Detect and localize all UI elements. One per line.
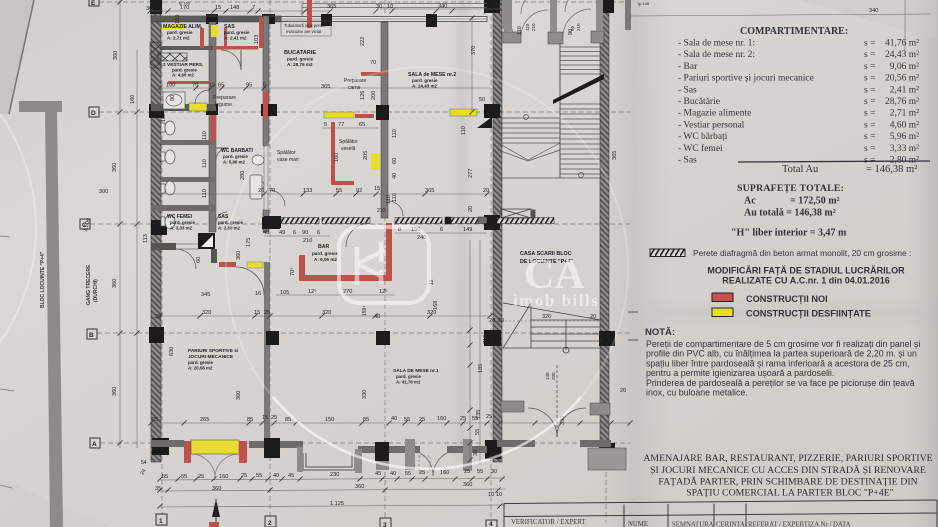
svg-text:- WC bărbați: - WC bărbați xyxy=(678,132,728,142)
svg-text:25: 25 xyxy=(460,416,466,422)
svg-text:= 172,50 m²: = 172,50 m² xyxy=(790,196,840,207)
svg-text:- Bucătărie: - Bucătărie xyxy=(678,97,720,107)
svg-text:A: 2,71 m2: A: 2,71 m2 xyxy=(167,36,190,41)
svg-text:170: 170 xyxy=(180,5,189,11)
svg-text:113: 113 xyxy=(143,234,149,243)
svg-text:55: 55 xyxy=(475,429,481,435)
svg-text:40: 40 xyxy=(390,471,396,477)
svg-text:Ac: Ac xyxy=(744,196,756,207)
svg-text:SPAȚIU COMERCIAL LA PARTER BLO: SPAȚIU COMERCIAL LA PARTER BLOC "P+4E" xyxy=(686,488,894,499)
svg-text:210: 210 xyxy=(531,23,536,31)
svg-text:s =: s = xyxy=(864,74,875,84)
svg-text:365: 365 xyxy=(425,188,434,194)
svg-text:320: 320 xyxy=(427,310,436,316)
svg-text:360: 360 xyxy=(236,251,242,260)
svg-text:pard. gresie: pard. gresie xyxy=(412,78,438,83)
svg-text:s =: s = xyxy=(864,50,875,60)
svg-text:630: 630 xyxy=(169,347,175,356)
svg-text:50: 50 xyxy=(479,97,485,103)
svg-text:2: 2 xyxy=(268,520,272,527)
svg-text:carne: carne xyxy=(348,85,361,91)
svg-text:- Vestiar personal: - Vestiar personal xyxy=(678,120,745,130)
svg-text:3,33 m²: 3,33 m² xyxy=(890,144,919,154)
svg-text:A: 2,41 m2: A: 2,41 m2 xyxy=(224,36,247,41)
svg-text:4: 4 xyxy=(489,521,493,527)
svg-text:- Sala de mese nr. 2:: - Sala de mese nr. 2: xyxy=(678,50,755,60)
svg-text:110: 110 xyxy=(525,23,530,31)
svg-text:s =: s = xyxy=(864,39,875,49)
svg-text:365: 365 xyxy=(612,151,618,160)
svg-text:Spălător: Spălător xyxy=(339,139,358,145)
svg-text:25: 25 xyxy=(264,310,270,316)
svg-text:25: 25 xyxy=(271,415,277,421)
svg-text:55: 55 xyxy=(405,471,411,477)
svg-text:s =: s = xyxy=(864,62,875,72)
svg-text:15: 15 xyxy=(209,83,215,89)
svg-text:300: 300 xyxy=(99,189,108,195)
svg-text:40: 40 xyxy=(273,473,279,479)
svg-text:55: 55 xyxy=(477,469,483,475)
svg-text:legume: legume xyxy=(215,102,232,108)
svg-text:Total Au: Total Au xyxy=(782,164,819,175)
svg-text:- WC femei: - WC femei xyxy=(678,143,723,154)
svg-text:NUME: NUME xyxy=(628,521,648,527)
svg-text:A: 20,56 m2: A: 20,56 m2 xyxy=(188,366,213,371)
svg-text:149: 149 xyxy=(463,227,472,233)
svg-text:veselă: veselă xyxy=(341,146,356,152)
svg-text:320: 320 xyxy=(322,310,331,316)
svg-text:320: 320 xyxy=(542,314,551,320)
svg-text:5: 5 xyxy=(263,83,266,89)
svg-text:pard. gresie: pard. gresie xyxy=(224,30,250,35)
svg-text:B: B xyxy=(89,332,94,339)
svg-text:85: 85 xyxy=(363,417,369,423)
svg-text:(DURCHI): (DURCHI) xyxy=(93,279,99,302)
svg-text:103: 103 xyxy=(254,35,260,44)
svg-text:A: 28,76 m2: A: 28,76 m2 xyxy=(287,62,313,67)
svg-text:- Sas: - Sas xyxy=(678,85,697,95)
svg-text:70: 70 xyxy=(269,188,275,194)
svg-text:ȘI JOCURI MECANICE CU ACCES DI: ȘI JOCURI MECANICE CU ACCES DIN STRADĂ Ș… xyxy=(650,464,926,476)
svg-text:Au totală = 146,38 m²: Au totală = 146,38 m² xyxy=(744,208,836,219)
svg-text:126: 126 xyxy=(360,91,366,100)
svg-text:110: 110 xyxy=(392,193,398,202)
svg-text:15: 15 xyxy=(215,5,221,11)
svg-text:80: 80 xyxy=(170,95,176,101)
svg-text:41,76 m²: 41,76 m² xyxy=(885,39,919,49)
svg-text:- Pariuri sportive și jocuri m: - Pariuri sportive și jocuri mecanice xyxy=(678,74,814,84)
svg-text:40: 40 xyxy=(263,230,269,236)
svg-text:pard. gresie: pard. gresie xyxy=(312,251,338,256)
svg-text:163: 163 xyxy=(175,15,181,24)
svg-text:pard. gresie: pard. gresie xyxy=(170,220,195,225)
svg-text:20: 20 xyxy=(258,188,264,194)
svg-text:330: 330 xyxy=(362,390,368,399)
svg-text:49: 49 xyxy=(279,230,285,236)
svg-text:25: 25 xyxy=(155,314,161,320)
svg-text:- Magazie alimente: - Magazie alimente xyxy=(678,109,751,119)
svg-text:24,43 m²: 24,43 m² xyxy=(885,50,919,60)
svg-text:102: 102 xyxy=(161,113,167,122)
svg-text:200: 200 xyxy=(371,91,377,100)
svg-text:pard. gresie: pard. gresie xyxy=(287,57,313,62)
svg-text:"H" liber interior = 3,47 m: "H" liber interior = 3,47 m xyxy=(731,228,847,239)
svg-text:65: 65 xyxy=(218,83,224,89)
svg-text:BUCATARIE: BUCATARIE xyxy=(284,50,316,56)
svg-text:340: 340 xyxy=(869,8,878,14)
svg-text:185: 185 xyxy=(478,364,484,373)
svg-text:30: 30 xyxy=(473,450,479,456)
svg-text:- Sala de mese nr. 1:: - Sala de mese nr. 1: xyxy=(678,39,755,49)
svg-text:200: 200 xyxy=(551,372,556,380)
svg-text:5,96 m²: 5,96 m² xyxy=(890,132,919,142)
svg-text:inox, cu buloane metalice.: inox, cu buloane metalice. xyxy=(646,388,748,398)
svg-text:60: 60 xyxy=(196,257,202,263)
svg-text:85: 85 xyxy=(285,417,291,423)
svg-text:CONSTRUCȚII DESFIINȚATE: CONSTRUCȚII DESFIINȚATE xyxy=(746,309,871,319)
svg-text:12⁵: 12⁵ xyxy=(308,288,317,295)
svg-text:90: 90 xyxy=(302,230,308,236)
svg-text:360: 360 xyxy=(355,484,364,490)
svg-text:10: 10 xyxy=(496,492,502,498)
svg-text:55: 55 xyxy=(336,188,342,194)
svg-text:REALIZATE CU A.C.nr. 1 din 04.: REALIZATE CU A.C.nr. 1 din 04.01.2016 xyxy=(722,276,890,286)
svg-text:277: 277 xyxy=(468,169,474,178)
svg-text:s =: s = xyxy=(864,109,875,119)
svg-text:65: 65 xyxy=(359,122,365,128)
svg-text:evacuare aer viciat: evacuare aer viciat xyxy=(286,29,322,34)
svg-text:25: 25 xyxy=(464,469,470,475)
svg-text:s =: s = xyxy=(864,132,875,142)
svg-text:COMPARTIMENTARE:: COMPARTIMENTARE: xyxy=(740,26,848,37)
svg-text:15: 15 xyxy=(374,186,380,192)
svg-text:Spălător: Spălător xyxy=(277,150,296,156)
svg-text:100: 100 xyxy=(166,83,175,89)
svg-text:20: 20 xyxy=(620,388,626,394)
svg-text:95: 95 xyxy=(246,83,252,89)
svg-text:175: 175 xyxy=(246,238,252,247)
svg-text:MODIFICĂRI FAȚĂ DE STADIUL LUC: MODIFICĂRI FAȚĂ DE STADIUL LUCRĂRILOR xyxy=(707,266,905,276)
svg-text:45: 45 xyxy=(288,473,294,479)
svg-text:A: A xyxy=(92,441,97,448)
svg-text:77: 77 xyxy=(338,122,344,128)
svg-text:CONSTRUCȚII NOI: CONSTRUCȚII NOI xyxy=(746,294,828,304)
svg-text:55: 55 xyxy=(162,474,168,480)
svg-text:265: 265 xyxy=(200,417,209,423)
svg-text:70: 70 xyxy=(192,83,198,89)
svg-text:SEMNATURA: SEMNATURA xyxy=(672,522,714,527)
svg-text:BLOC LOCUINTE "P+4": BLOC LOCUINTE "P+4" xyxy=(40,251,46,308)
svg-text:45: 45 xyxy=(375,471,381,477)
svg-text:210: 210 xyxy=(303,238,312,244)
svg-text:40: 40 xyxy=(391,416,397,422)
svg-text:A: 4,60 m2: A: 4,60 m2 xyxy=(172,73,195,78)
svg-text:GANG TRECERE: GANG TRECERE xyxy=(86,264,92,305)
svg-text:30: 30 xyxy=(146,6,152,12)
svg-text:25: 25 xyxy=(152,417,158,423)
svg-text:s =: s = xyxy=(864,97,875,107)
svg-text:vase mari: vase mari xyxy=(277,157,299,163)
svg-text:3: 3 xyxy=(383,522,387,527)
svg-text:9,06 m²: 9,06 m² xyxy=(890,62,919,72)
svg-text:2,41 m²: 2,41 m² xyxy=(890,85,919,95)
svg-text:6: 6 xyxy=(317,230,320,236)
svg-text:25: 25 xyxy=(419,417,425,423)
svg-text:85: 85 xyxy=(247,417,253,423)
svg-text:15: 15 xyxy=(254,310,260,316)
svg-text:A: 24,43 m2: A: 24,43 m2 xyxy=(412,84,438,89)
svg-text:20: 20 xyxy=(498,318,504,324)
svg-text:CERINTA: CERINTA xyxy=(716,522,745,527)
svg-text:SUPRAFEȚE TOTALE:: SUPRAFEȚE TOTALE: xyxy=(737,183,844,194)
svg-text:28,76 m²: 28,76 m² xyxy=(885,97,919,107)
svg-text:s =: s = xyxy=(864,120,875,130)
svg-text:Pereții de compartimentare de: Pereții de compartimentare de 5 cm grosi… xyxy=(646,339,920,349)
svg-text:6: 6 xyxy=(440,227,443,233)
svg-text:360: 360 xyxy=(236,391,242,400)
svg-text:6: 6 xyxy=(293,230,296,236)
svg-text:222: 222 xyxy=(360,37,366,46)
svg-text:20: 20 xyxy=(468,206,474,212)
svg-text:360: 360 xyxy=(113,51,119,60)
svg-text:Tubulatură inox pentru: Tubulatură inox pentru xyxy=(284,23,326,28)
svg-text:25: 25 xyxy=(419,470,425,476)
svg-text:280: 280 xyxy=(240,171,246,180)
svg-text:159⁵: 159⁵ xyxy=(362,306,368,316)
svg-text:BAR: BAR xyxy=(318,244,329,250)
svg-text:110: 110 xyxy=(517,26,523,35)
svg-text:70: 70 xyxy=(370,60,376,66)
svg-text:30: 30 xyxy=(376,4,382,10)
svg-text:55: 55 xyxy=(404,417,410,423)
svg-text:92: 92 xyxy=(356,188,362,194)
svg-text:230: 230 xyxy=(330,472,339,478)
svg-text:365: 365 xyxy=(327,4,336,10)
svg-text:E: E xyxy=(91,0,96,7)
svg-text:16: 16 xyxy=(255,291,261,297)
svg-text:imob bills: imob bills xyxy=(513,291,599,310)
svg-text:NOTĂ:: NOTĂ: xyxy=(645,327,675,338)
svg-text:pentru a permite igienizarea u: pentru a permite igienizarea ușoară a pa… xyxy=(646,368,834,378)
svg-text:95: 95 xyxy=(492,2,498,8)
svg-text:profile din PVC alb, cu înălți: profile din PVC alb, cu înălțimea la par… xyxy=(646,349,917,359)
svg-text:360: 360 xyxy=(463,482,472,488)
svg-text:160: 160 xyxy=(440,470,449,476)
svg-text:710: 710 xyxy=(483,335,489,344)
svg-text:210: 210 xyxy=(576,23,581,31)
svg-text:D: D xyxy=(91,110,96,117)
svg-text:spațiu liber între pardoseală: spațiu liber între pardoseală și rama in… xyxy=(646,358,910,368)
svg-text:135: 135 xyxy=(476,410,482,419)
svg-text:110: 110 xyxy=(202,189,208,198)
svg-text:1.125: 1.125 xyxy=(330,501,344,507)
svg-text:s =: s = xyxy=(864,85,875,95)
svg-text:40: 40 xyxy=(374,314,380,320)
svg-text:360: 360 xyxy=(212,486,221,492)
svg-text:60: 60 xyxy=(392,158,398,164)
svg-text:- Bar: - Bar xyxy=(678,62,698,72)
svg-text:5: 5 xyxy=(324,122,327,128)
svg-text:REFERAT / EXPERTIZA Nr / DATA: REFERAT / EXPERTIZA Nr / DATA xyxy=(748,522,851,527)
svg-text:A: 41,76 m2: A: 41,76 m2 xyxy=(396,380,421,385)
svg-text:205: 205 xyxy=(363,151,369,160)
svg-text:110: 110 xyxy=(202,159,208,168)
svg-text:20,56 m²: 20,56 m² xyxy=(885,74,919,84)
svg-text:55: 55 xyxy=(181,474,187,480)
svg-text:320: 320 xyxy=(202,310,211,316)
svg-text:35: 35 xyxy=(155,486,161,492)
svg-text:AMENAJARE BAR, RESTAURANT, PIZ: AMENAJARE BAR, RESTAURANT, PIZZERIE, PAR… xyxy=(643,453,932,464)
svg-text:tp 145: tp 145 xyxy=(638,1,650,6)
svg-text:210: 210 xyxy=(377,208,386,214)
svg-text:110: 110 xyxy=(461,126,467,135)
svg-text:40: 40 xyxy=(392,173,398,179)
svg-text:PARIURI SPORTIVE si: PARIURI SPORTIVE si xyxy=(188,348,238,354)
svg-text:10: 10 xyxy=(488,492,494,498)
svg-text:148: 148 xyxy=(230,5,239,11)
svg-text:pard. gresie: pard. gresie xyxy=(223,154,248,159)
svg-text:pard. gresie: pard. gresie xyxy=(188,360,213,365)
svg-text:110: 110 xyxy=(386,195,392,204)
svg-text:tp 160: tp 160 xyxy=(179,1,191,6)
svg-text:370: 370 xyxy=(471,46,477,55)
svg-text:- Sas: - Sas xyxy=(678,156,697,166)
svg-text:25: 25 xyxy=(486,414,492,420)
svg-text:A: 9,06 m2: A: 9,06 m2 xyxy=(314,257,337,262)
svg-text:pard. gresie: pard. gresie xyxy=(396,374,421,379)
svg-text:Perete diafragmă din beton arm: Perete diafragmă din beton armat monolit… xyxy=(693,248,911,258)
svg-text:150: 150 xyxy=(325,417,334,423)
svg-text:365: 365 xyxy=(321,84,330,90)
svg-text:160: 160 xyxy=(130,95,136,104)
svg-text:90: 90 xyxy=(570,25,575,31)
svg-text:20: 20 xyxy=(489,318,495,324)
svg-text:12⁵: 12⁵ xyxy=(379,288,388,295)
svg-text:2,71 m²: 2,71 m² xyxy=(890,109,919,119)
svg-text:110: 110 xyxy=(202,131,208,140)
svg-text:VERIFICATOR / EXPERT: VERIFICATOR / EXPERT xyxy=(511,519,586,526)
svg-text:133: 133 xyxy=(303,188,312,194)
svg-text:Prinderea de pardoseală a pere: Prinderea de pardoseală a pereților se v… xyxy=(646,378,915,388)
svg-text:360: 360 xyxy=(112,279,118,288)
svg-text:25: 25 xyxy=(241,473,247,479)
svg-text:s =: s = xyxy=(864,144,875,154)
svg-text:70⁵: 70⁵ xyxy=(289,267,296,276)
svg-text:1: 1 xyxy=(159,518,163,525)
svg-text:4,60 m²: 4,60 m² xyxy=(890,120,919,130)
svg-text:168: 168 xyxy=(433,301,439,310)
svg-text:360: 360 xyxy=(112,163,118,172)
svg-text:7: 7 xyxy=(252,5,255,11)
svg-text:140: 140 xyxy=(545,372,550,380)
svg-text:40: 40 xyxy=(490,335,496,341)
svg-text:55: 55 xyxy=(256,473,262,479)
svg-text:15: 15 xyxy=(262,415,268,421)
svg-text:105: 105 xyxy=(280,290,289,296)
svg-text:20: 20 xyxy=(590,314,596,320)
svg-text:pard. gresie: pard. gresie xyxy=(167,30,193,35)
svg-text:Preparare: Preparare xyxy=(213,95,236,101)
svg-text:110: 110 xyxy=(392,129,398,138)
svg-text:25: 25 xyxy=(198,474,204,480)
svg-text:160: 160 xyxy=(437,416,446,422)
svg-text:A: 3,33 m2: A: 3,33 m2 xyxy=(170,226,193,231)
svg-text:A: 5,96 m2: A: 5,96 m2 xyxy=(223,160,246,165)
svg-text:10: 10 xyxy=(387,4,393,10)
svg-text:340: 340 xyxy=(438,4,447,10)
svg-text:54: 54 xyxy=(141,460,147,466)
svg-text:360: 360 xyxy=(112,387,118,396)
svg-text:160: 160 xyxy=(334,153,340,162)
svg-text:FAȚADĂ PARTER, PRIN SCHIMBARE: FAȚADĂ PARTER, PRIN SCHIMBARE DE DESTINA… xyxy=(658,476,917,488)
svg-text:160: 160 xyxy=(219,474,228,480)
svg-text:30: 30 xyxy=(491,469,497,475)
svg-text:= 146,38 m²: = 146,38 m² xyxy=(866,164,917,175)
svg-text:345: 345 xyxy=(201,292,210,298)
svg-text:20: 20 xyxy=(483,188,489,194)
